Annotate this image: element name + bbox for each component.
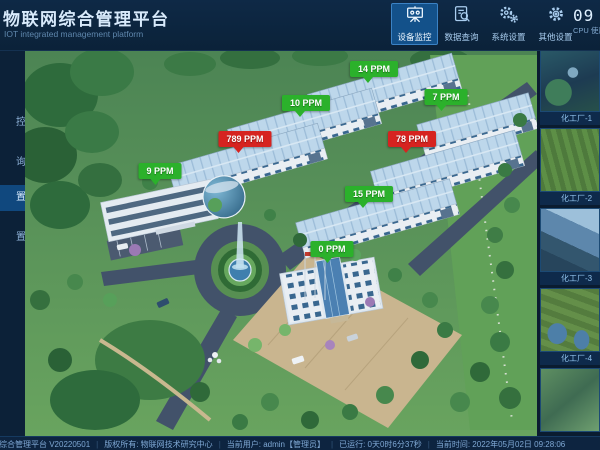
- plant-2-preview: [540, 128, 600, 192]
- tab-system-settings[interactable]: 系统设置: [485, 3, 532, 45]
- status-current-time: 当前时间: 2022年05月02日 09:28:06: [436, 438, 565, 450]
- thumbnail-plant-3[interactable]: 化工厂-3: [540, 208, 600, 285]
- tab-label: 其他设置: [538, 31, 572, 43]
- thumbnail-plant-4[interactable]: 化工厂-4: [540, 288, 600, 365]
- thumbnail-caption: 化工厂-2: [540, 192, 600, 205]
- monitor-board-icon: [404, 5, 426, 29]
- gear-icon: [545, 5, 567, 29]
- gears-icon: [498, 5, 520, 29]
- thumbnail-caption: 化工厂-1: [540, 112, 600, 125]
- sensor-label[interactable]: 7 PPM: [424, 89, 467, 105]
- sensor-label-alarm[interactable]: 78 PPM: [388, 131, 436, 147]
- status-uptime: 已运行: 0天0时6分37秒: [339, 438, 422, 450]
- top-nav: 设备监控 数据查询: [391, 0, 579, 50]
- plant-3-preview: [540, 208, 600, 272]
- left-menu-item-4[interactable]: 置: [0, 225, 25, 251]
- tab-device-monitoring[interactable]: 设备监控: [391, 3, 438, 45]
- thumbnail-caption: 化工厂-3: [540, 272, 600, 285]
- header-bar: 物联网综合管理平台 IOT integrated management plat…: [0, 0, 600, 51]
- app-window: 物联网综合管理平台 IOT integrated management plat…: [0, 0, 600, 450]
- left-menu-item-2[interactable]: 询: [0, 150, 25, 176]
- sensor-label[interactable]: 15 PPM: [345, 186, 393, 202]
- cpu-usage-widget: 09 CPU 使用率: [573, 7, 600, 36]
- left-sidebar: 控 询 置 置: [0, 50, 25, 436]
- status-bar: 综合管理平台 V20220501 | 版权所有: 物联网技术研究中心 | 当前用…: [0, 436, 600, 450]
- document-search-icon: [451, 5, 473, 29]
- tab-data-query[interactable]: 数据查询: [438, 3, 485, 45]
- plant-4-preview: [540, 288, 600, 352]
- left-menu-item-1[interactable]: 控: [0, 110, 25, 136]
- status-copyright: 版权所有: 物联网技术研究中心: [104, 438, 212, 450]
- status-version: 综合管理平台 V20220501: [0, 438, 90, 450]
- cpu-usage-value: 09: [573, 7, 600, 25]
- thumbnail-caption: 化工厂-4: [540, 352, 600, 365]
- plant-thumbnail-list: 化工厂-1 化工厂-2 化工厂-3 化工厂-4: [537, 50, 600, 436]
- thumbnail-plant-1[interactable]: 化工厂-1: [540, 48, 600, 125]
- thumbnail-plant-2[interactable]: 化工厂-2: [540, 128, 600, 205]
- sensor-label[interactable]: 14 PPM: [350, 61, 398, 77]
- sensor-label[interactable]: 10 PPM: [282, 95, 330, 111]
- sensor-label-alarm[interactable]: 789 PPM: [218, 131, 271, 147]
- status-separator: |: [331, 438, 333, 450]
- plant-5-preview: [540, 368, 600, 432]
- tab-label: 设备监控: [397, 31, 431, 43]
- plant-1-preview: [540, 48, 600, 112]
- status-separator: |: [428, 438, 430, 450]
- tab-label: 系统设置: [491, 31, 525, 43]
- status-current-user: 当前用户: admin【管理员】: [227, 438, 325, 450]
- left-menu-item-3[interactable]: 置: [0, 185, 25, 211]
- thumbnail-plant-5[interactable]: [540, 368, 600, 432]
- sensor-label[interactable]: 9 PPM: [138, 163, 181, 179]
- cpu-usage-label: CPU 使用率: [573, 25, 600, 36]
- page-title: 物联网综合管理平台: [3, 5, 170, 30]
- status-separator: |: [219, 438, 221, 450]
- page-subtitle: IOT integrated management platform: [4, 29, 143, 39]
- tab-label: 数据查询: [444, 31, 478, 43]
- status-separator: |: [96, 438, 98, 450]
- sensor-label[interactable]: 0 PPM: [310, 241, 353, 257]
- tab-other-settings[interactable]: 其他设置: [532, 3, 579, 45]
